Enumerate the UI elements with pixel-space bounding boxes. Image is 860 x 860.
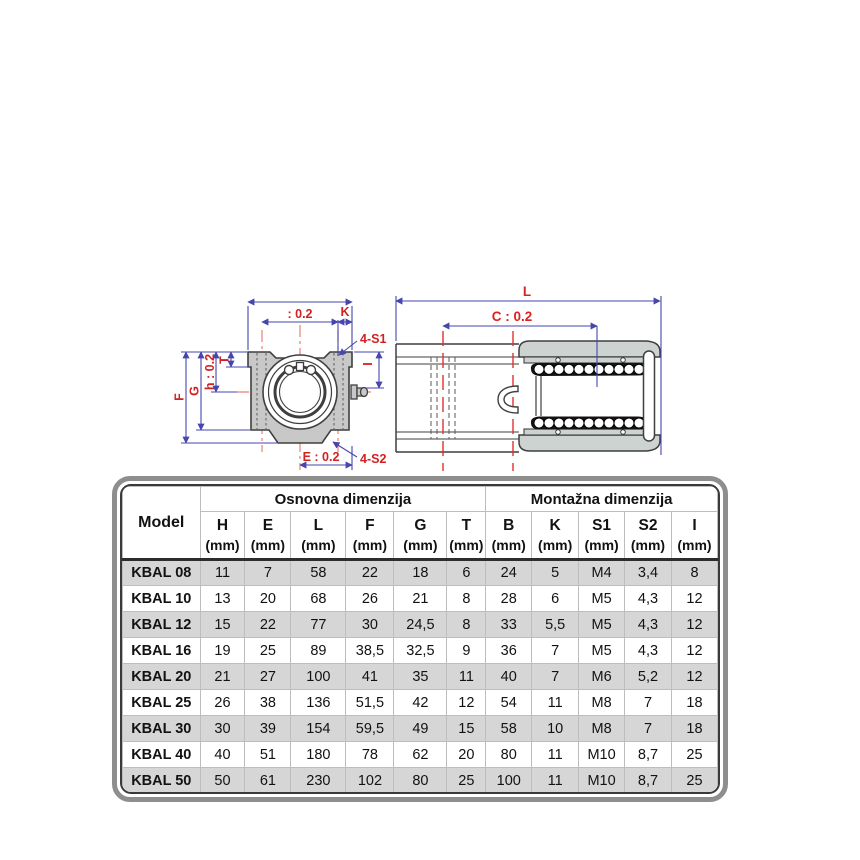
bearing-ball: [544, 364, 554, 374]
bearing-ball: [604, 364, 614, 374]
value-cell-k: 5,5: [532, 612, 579, 638]
value-cell-b: 24: [486, 560, 532, 586]
value-cell-g: 80: [394, 768, 447, 794]
value-cell-h: 50: [200, 768, 245, 794]
table-row: KBAL 081175822186245M43,48: [123, 560, 718, 586]
dim-label-k: K: [340, 305, 349, 319]
dim-label-top-tolerance: : 0.2: [287, 307, 312, 321]
value-cell-t: 11: [447, 664, 486, 690]
bearing-ball: [534, 364, 544, 374]
value-cell-s2: 4,3: [625, 638, 672, 664]
value-cell-s2: 7: [625, 716, 672, 742]
column-unit: (mm): [394, 536, 446, 554]
value-cell-k: 6: [532, 586, 579, 612]
model-cell: KBAL 10: [123, 586, 201, 612]
value-cell-e: 25: [245, 638, 291, 664]
value-cell-i: 12: [671, 586, 717, 612]
bearing-ball: [584, 418, 594, 428]
table-row: KBAL 121522773024,58335,5M54,312: [123, 612, 718, 638]
end-cap-top: [519, 341, 660, 357]
value-cell-g: 35: [394, 664, 447, 690]
bearing-ball: [614, 418, 624, 428]
column-header-h: H(mm): [200, 512, 245, 560]
front-view: : 0.2 K 4-S1 4-S2 E : 0.2 I T h : 0.2 G …: [173, 302, 387, 470]
column-letter: I: [672, 516, 717, 536]
bearing-ball: [534, 418, 544, 428]
table-row: KBAL 1013206826218286M54,312: [123, 586, 718, 612]
value-cell-t: 20: [447, 742, 486, 768]
value-cell-g: 62: [394, 742, 447, 768]
value-cell-f: 22: [346, 560, 394, 586]
value-cell-f: 41: [346, 664, 394, 690]
column-header-f: F(mm): [346, 512, 394, 560]
value-cell-e: 51: [245, 742, 291, 768]
table-header: Model Osnovna dimenzija Montažna dimenzi…: [123, 487, 718, 560]
value-cell-l: 154: [291, 716, 346, 742]
value-cell-g: 24,5: [394, 612, 447, 638]
value-cell-g: 21: [394, 586, 447, 612]
value-cell-i: 18: [671, 716, 717, 742]
value-cell-i: 25: [671, 768, 717, 794]
bearing-ball: [554, 364, 564, 374]
spacer-bottom: [524, 429, 651, 435]
value-cell-g: 42: [394, 690, 447, 716]
value-cell-s1: M10: [579, 768, 625, 794]
value-cell-t: 8: [447, 612, 486, 638]
column-unit: (mm): [447, 536, 485, 554]
value-cell-e: 7: [245, 560, 291, 586]
value-cell-b: 58: [486, 716, 532, 742]
value-cell-i: 12: [671, 664, 717, 690]
dim-label-i: I: [361, 362, 375, 365]
column-unit: (mm): [672, 536, 717, 554]
value-cell-g: 18: [394, 560, 447, 586]
table-row: KBAL 1619258938,532,59367M54,312: [123, 638, 718, 664]
column-unit: (mm): [201, 536, 245, 554]
bearing-ball: [544, 418, 554, 428]
value-cell-i: 8: [671, 560, 717, 586]
value-cell-t: 12: [447, 690, 486, 716]
column-letter: L: [291, 516, 345, 536]
value-cell-e: 39: [245, 716, 291, 742]
column-unit: (mm): [579, 536, 624, 554]
value-cell-g: 32,5: [394, 638, 447, 664]
value-cell-i: 12: [671, 638, 717, 664]
value-cell-g: 49: [394, 716, 447, 742]
model-cell: KBAL 30: [123, 716, 201, 742]
bearing-ball: [554, 418, 564, 428]
value-cell-h: 15: [200, 612, 245, 638]
retainer-hole-left: [285, 366, 294, 375]
value-cell-s1: M10: [579, 742, 625, 768]
value-cell-s1: M8: [579, 716, 625, 742]
model-cell: KBAL 20: [123, 664, 201, 690]
table-row: KBAL 30303915459,549155810M8718: [123, 716, 718, 742]
bearing-ball: [624, 418, 634, 428]
value-cell-k: 10: [532, 716, 579, 742]
value-cell-h: 11: [200, 560, 245, 586]
column-unit: (mm): [532, 536, 578, 554]
bearing-ball: [624, 364, 634, 374]
value-cell-k: 7: [532, 664, 579, 690]
dim-label-4s1: 4-S1: [360, 332, 386, 346]
ball-row-top: [534, 364, 644, 374]
table-row: KBAL 505061230102802510011M108,725: [123, 768, 718, 794]
column-header-i: I(mm): [671, 512, 717, 560]
value-cell-f: 38,5: [346, 638, 394, 664]
value-cell-s1: M6: [579, 664, 625, 690]
table-row: KBAL 25263813651,542125411M8718: [123, 690, 718, 716]
model-cell: KBAL 40: [123, 742, 201, 768]
model-cell: KBAL 25: [123, 690, 201, 716]
value-cell-k: 5: [532, 560, 579, 586]
dimension-table: Model Osnovna dimenzija Montažna dimenzi…: [122, 486, 718, 794]
spec-table-border: Model Osnovna dimenzija Montažna dimenzi…: [120, 484, 720, 794]
ball-row-bottom: [534, 418, 644, 428]
value-cell-f: 59,5: [346, 716, 394, 742]
bore: [263, 355, 337, 429]
column-header-l: L(mm): [291, 512, 346, 560]
value-cell-k: 7: [532, 638, 579, 664]
value-cell-e: 61: [245, 768, 291, 794]
value-cell-k: 11: [532, 690, 579, 716]
table-row: KBAL 4040511807862208011M108,725: [123, 742, 718, 768]
bearing-ball: [604, 418, 614, 428]
bearing-ball: [594, 418, 604, 428]
value-cell-b: 36: [486, 638, 532, 664]
model-cell: KBAL 16: [123, 638, 201, 664]
technical-drawing: : 0.2 K 4-S1 4-S2 E : 0.2 I T h : 0.2 G …: [0, 0, 860, 480]
value-cell-s2: 8,7: [625, 742, 672, 768]
model-cell: KBAL 12: [123, 612, 201, 638]
value-cell-f: 30: [346, 612, 394, 638]
value-cell-b: 28: [486, 586, 532, 612]
value-cell-e: 22: [245, 612, 291, 638]
value-cell-b: 33: [486, 612, 532, 638]
column-unit: (mm): [245, 536, 290, 554]
column-header-b: B(mm): [486, 512, 532, 560]
column-header-e: E(mm): [245, 512, 291, 560]
column-header-s1: S1(mm): [579, 512, 625, 560]
retainer-bar: [644, 351, 655, 441]
value-cell-l: 100: [291, 664, 346, 690]
model-header: Model: [123, 487, 201, 560]
value-cell-e: 27: [245, 664, 291, 690]
bearing-ball: [584, 364, 594, 374]
value-cell-s2: 3,4: [625, 560, 672, 586]
retainer-hole-right: [307, 366, 316, 375]
column-letter: G: [394, 516, 446, 536]
value-cell-h: 21: [200, 664, 245, 690]
column-letter: H: [201, 516, 245, 536]
value-cell-b: 80: [486, 742, 532, 768]
value-cell-f: 26: [346, 586, 394, 612]
column-unit: (mm): [291, 536, 345, 554]
value-cell-l: 230: [291, 768, 346, 794]
value-cell-e: 38: [245, 690, 291, 716]
dim-label-f: F: [173, 393, 187, 401]
bearing-ball: [574, 418, 584, 428]
model-cell: KBAL 50: [123, 768, 201, 794]
value-cell-l: 136: [291, 690, 346, 716]
bore-inner: [280, 372, 321, 413]
table-row: KBAL 202127100413511407M65,212: [123, 664, 718, 690]
bearing-ball: [614, 364, 624, 374]
value-cell-s2: 7: [625, 690, 672, 716]
value-cell-k: 11: [532, 768, 579, 794]
spec-table-frame: Model Osnovna dimenzija Montažna dimenzi…: [112, 476, 728, 802]
column-header-k: K(mm): [532, 512, 579, 560]
value-cell-l: 77: [291, 612, 346, 638]
table-body: KBAL 081175822186245M43,48KBAL 101320682…: [123, 560, 718, 794]
column-unit: (mm): [346, 536, 393, 554]
sleeve-edges: [536, 376, 541, 416]
value-cell-h: 26: [200, 690, 245, 716]
side-view: L C : 0.2: [396, 284, 661, 471]
grease-nipple-side: [498, 386, 518, 413]
value-cell-l: 89: [291, 638, 346, 664]
dim-label-l: L: [523, 284, 531, 299]
column-unit: (mm): [486, 536, 531, 554]
dim-label-t: T: [218, 356, 232, 364]
model-cell: KBAL 08: [123, 560, 201, 586]
value-cell-s2: 8,7: [625, 768, 672, 794]
bearing-ball: [594, 364, 604, 374]
value-cell-h: 40: [200, 742, 245, 768]
value-cell-b: 40: [486, 664, 532, 690]
value-cell-f: 102: [346, 768, 394, 794]
value-cell-e: 20: [245, 586, 291, 612]
bearing-ball: [634, 418, 644, 428]
column-letter: S1: [579, 516, 624, 536]
bearing-ball: [564, 364, 574, 374]
column-letter: T: [447, 516, 485, 536]
value-cell-s2: 4,3: [625, 586, 672, 612]
grease-nipple-front: [351, 385, 368, 399]
value-cell-k: 11: [532, 742, 579, 768]
value-cell-s1: M4: [579, 560, 625, 586]
group-header-basic: Osnovna dimenzija: [200, 487, 486, 512]
dim-label-h: h : 0.2: [203, 354, 217, 390]
group-header-mounting: Montažna dimenzija: [486, 487, 718, 512]
column-header-t: T(mm): [447, 512, 486, 560]
column-letter: E: [245, 516, 290, 536]
value-cell-t: 8: [447, 586, 486, 612]
value-cell-t: 25: [447, 768, 486, 794]
value-cell-s1: M8: [579, 690, 625, 716]
column-letter: S2: [625, 516, 671, 536]
value-cell-f: 51,5: [346, 690, 394, 716]
value-cell-t: 15: [447, 716, 486, 742]
bearing-ball: [634, 364, 644, 374]
value-cell-i: 25: [671, 742, 717, 768]
dim-label-g: G: [188, 386, 202, 396]
spacer-top: [524, 357, 651, 363]
value-cell-t: 9: [447, 638, 486, 664]
bearing-ball: [564, 418, 574, 428]
value-cell-h: 13: [200, 586, 245, 612]
value-cell-l: 180: [291, 742, 346, 768]
value-cell-f: 78: [346, 742, 394, 768]
column-letter: F: [346, 516, 393, 536]
value-cell-i: 12: [671, 612, 717, 638]
value-cell-i: 18: [671, 690, 717, 716]
dim-label-4s2: 4-S2: [360, 452, 386, 466]
column-letter: B: [486, 516, 531, 536]
group-header-row: Model Osnovna dimenzija Montažna dimenzi…: [123, 487, 718, 512]
keyway-slot: [297, 363, 304, 371]
value-cell-l: 58: [291, 560, 346, 586]
column-unit: (mm): [625, 536, 671, 554]
column-header-g: G(mm): [394, 512, 447, 560]
end-cap-bottom: [519, 435, 660, 451]
dim-label-e: E : 0.2: [303, 450, 340, 464]
bearing-ball: [574, 364, 584, 374]
column-letter: K: [532, 516, 578, 536]
value-cell-s1: M5: [579, 586, 625, 612]
value-cell-s1: M5: [579, 612, 625, 638]
value-cell-b: 54: [486, 690, 532, 716]
value-cell-h: 30: [200, 716, 245, 742]
value-cell-s2: 5,2: [625, 664, 672, 690]
column-header-s2: S2(mm): [625, 512, 672, 560]
value-cell-t: 6: [447, 560, 486, 586]
value-cell-s2: 4,3: [625, 612, 672, 638]
columns-row: H(mm)E(mm)L(mm)F(mm)G(mm)T(mm)B(mm)K(mm)…: [123, 512, 718, 560]
value-cell-h: 19: [200, 638, 245, 664]
value-cell-b: 100: [486, 768, 532, 794]
dim-label-c: C : 0.2: [492, 309, 533, 324]
value-cell-l: 68: [291, 586, 346, 612]
value-cell-s1: M5: [579, 638, 625, 664]
